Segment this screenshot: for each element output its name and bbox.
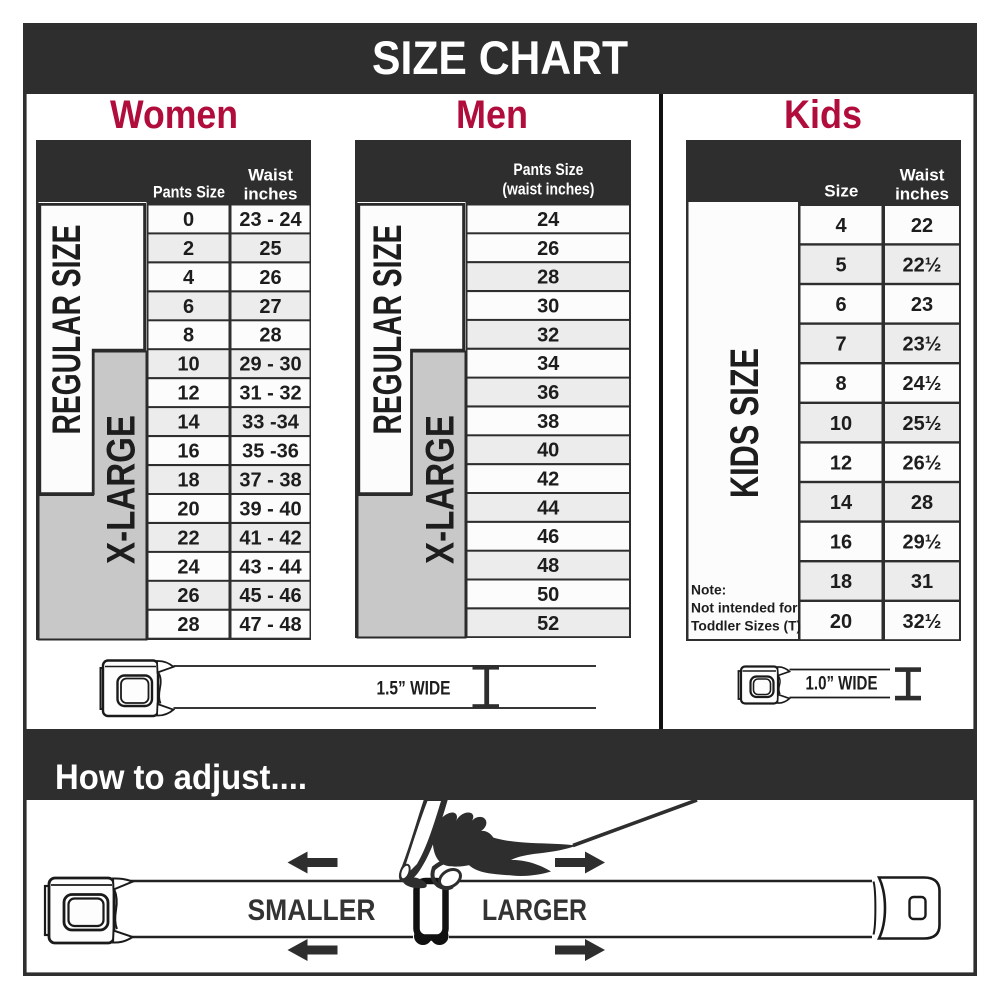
svg-text:2: 2 (183, 238, 194, 260)
svg-text:48: 48 (537, 555, 559, 577)
svg-text:46: 46 (537, 526, 559, 548)
svg-text:24: 24 (537, 209, 560, 231)
svg-text:50: 50 (537, 584, 559, 606)
svg-text:SMALLER: SMALLER (248, 894, 376, 927)
svg-text:43 - 44: 43 - 44 (239, 556, 302, 578)
svg-text:26: 26 (259, 267, 281, 289)
svg-text:1.0” WIDE: 1.0” WIDE (806, 674, 878, 695)
svg-text:REGULAR SIZE: REGULAR SIZE (366, 225, 410, 435)
svg-text:22: 22 (911, 215, 933, 237)
svg-text:52: 52 (537, 613, 559, 635)
svg-text:inches: inches (895, 185, 949, 204)
svg-text:23: 23 (911, 294, 933, 316)
svg-text:25½: 25½ (903, 413, 942, 435)
svg-text:34: 34 (537, 353, 560, 375)
svg-text:Waist: Waist (248, 166, 293, 185)
svg-text:47 - 48: 47 - 48 (239, 614, 301, 636)
svg-text:30: 30 (537, 295, 559, 317)
svg-text:Women: Women (110, 93, 238, 137)
svg-text:14: 14 (830, 492, 853, 514)
svg-text:22: 22 (177, 527, 199, 549)
svg-text:10: 10 (177, 354, 199, 376)
svg-text:REGULAR SIZE: REGULAR SIZE (45, 225, 89, 435)
svg-text:16: 16 (177, 441, 199, 463)
svg-text:32: 32 (537, 324, 559, 346)
svg-text:26½: 26½ (903, 452, 942, 474)
svg-text:38: 38 (537, 411, 559, 433)
svg-text:Pants Size: Pants Size (153, 183, 225, 202)
svg-text:32½: 32½ (903, 611, 942, 633)
svg-text:20: 20 (830, 611, 852, 633)
svg-text:44: 44 (537, 497, 560, 519)
svg-text:6: 6 (183, 296, 194, 318)
svg-text:18: 18 (177, 469, 199, 491)
svg-text:42: 42 (537, 469, 559, 491)
svg-text:23 - 24: 23 - 24 (239, 209, 302, 231)
svg-text:35 -36: 35 -36 (242, 441, 299, 463)
svg-text:4: 4 (183, 267, 195, 289)
svg-text:36: 36 (537, 382, 559, 404)
svg-text:5: 5 (835, 254, 846, 276)
svg-text:41 - 42: 41 - 42 (239, 527, 301, 549)
svg-text:39 - 40: 39 - 40 (239, 498, 301, 520)
svg-text:12: 12 (177, 383, 199, 405)
svg-text:4: 4 (835, 215, 847, 237)
svg-text:28: 28 (177, 614, 199, 636)
svg-text:12: 12 (830, 452, 852, 474)
svg-text:Kids: Kids (784, 93, 862, 137)
svg-text:24: 24 (177, 556, 200, 578)
svg-text:22½: 22½ (903, 254, 942, 276)
svg-text:How to adjust....: How to adjust.... (55, 758, 307, 797)
svg-text:SIZE CHART: SIZE CHART (372, 31, 628, 84)
svg-text:7: 7 (835, 334, 846, 356)
svg-text:Note:: Note: (691, 583, 726, 598)
svg-text:16: 16 (830, 532, 852, 554)
svg-text:10: 10 (830, 413, 852, 435)
svg-text:26: 26 (537, 238, 559, 260)
svg-text:33 -34: 33 -34 (242, 412, 300, 434)
svg-text:45 - 46: 45 - 46 (239, 585, 301, 607)
svg-text:KIDS SIZE: KIDS SIZE (723, 348, 767, 498)
svg-text:37 - 38: 37 - 38 (239, 469, 301, 491)
svg-text:X-LARGE: X-LARGE (100, 415, 144, 564)
svg-text:26: 26 (177, 585, 199, 607)
svg-text:29 - 30: 29 - 30 (239, 354, 301, 376)
svg-text:31: 31 (911, 571, 933, 593)
svg-text:6: 6 (835, 294, 846, 316)
svg-text:27: 27 (259, 296, 281, 318)
svg-text:Waist: Waist (900, 166, 945, 185)
svg-text:14: 14 (177, 412, 200, 434)
svg-text:0: 0 (183, 209, 194, 231)
svg-text:20: 20 (177, 498, 199, 520)
svg-text:40: 40 (537, 440, 559, 462)
svg-text:24½: 24½ (903, 373, 942, 395)
svg-text:inches: inches (244, 185, 298, 204)
svg-text:29½: 29½ (903, 532, 942, 554)
svg-text:Not intended for: Not intended for (691, 601, 798, 616)
svg-text:Men: Men (456, 93, 528, 137)
svg-text:25: 25 (259, 238, 281, 260)
svg-text:(waist inches): (waist inches) (502, 180, 594, 199)
svg-text:28: 28 (259, 325, 281, 347)
svg-text:8: 8 (183, 325, 194, 347)
svg-text:28: 28 (537, 267, 559, 289)
svg-text:Toddler Sizes (T): Toddler Sizes (T) (691, 619, 801, 634)
svg-text:31 - 32: 31 - 32 (239, 383, 301, 405)
svg-text:18: 18 (830, 571, 852, 593)
svg-text:23½: 23½ (903, 334, 942, 356)
svg-text:28: 28 (911, 492, 933, 514)
svg-text:X-LARGE: X-LARGE (419, 415, 463, 564)
svg-text:LARGER: LARGER (482, 894, 587, 927)
svg-text:Pants Size: Pants Size (513, 160, 583, 179)
svg-text:Size: Size (824, 182, 858, 201)
svg-text:8: 8 (835, 373, 846, 395)
svg-text:1.5” WIDE: 1.5” WIDE (377, 679, 451, 700)
